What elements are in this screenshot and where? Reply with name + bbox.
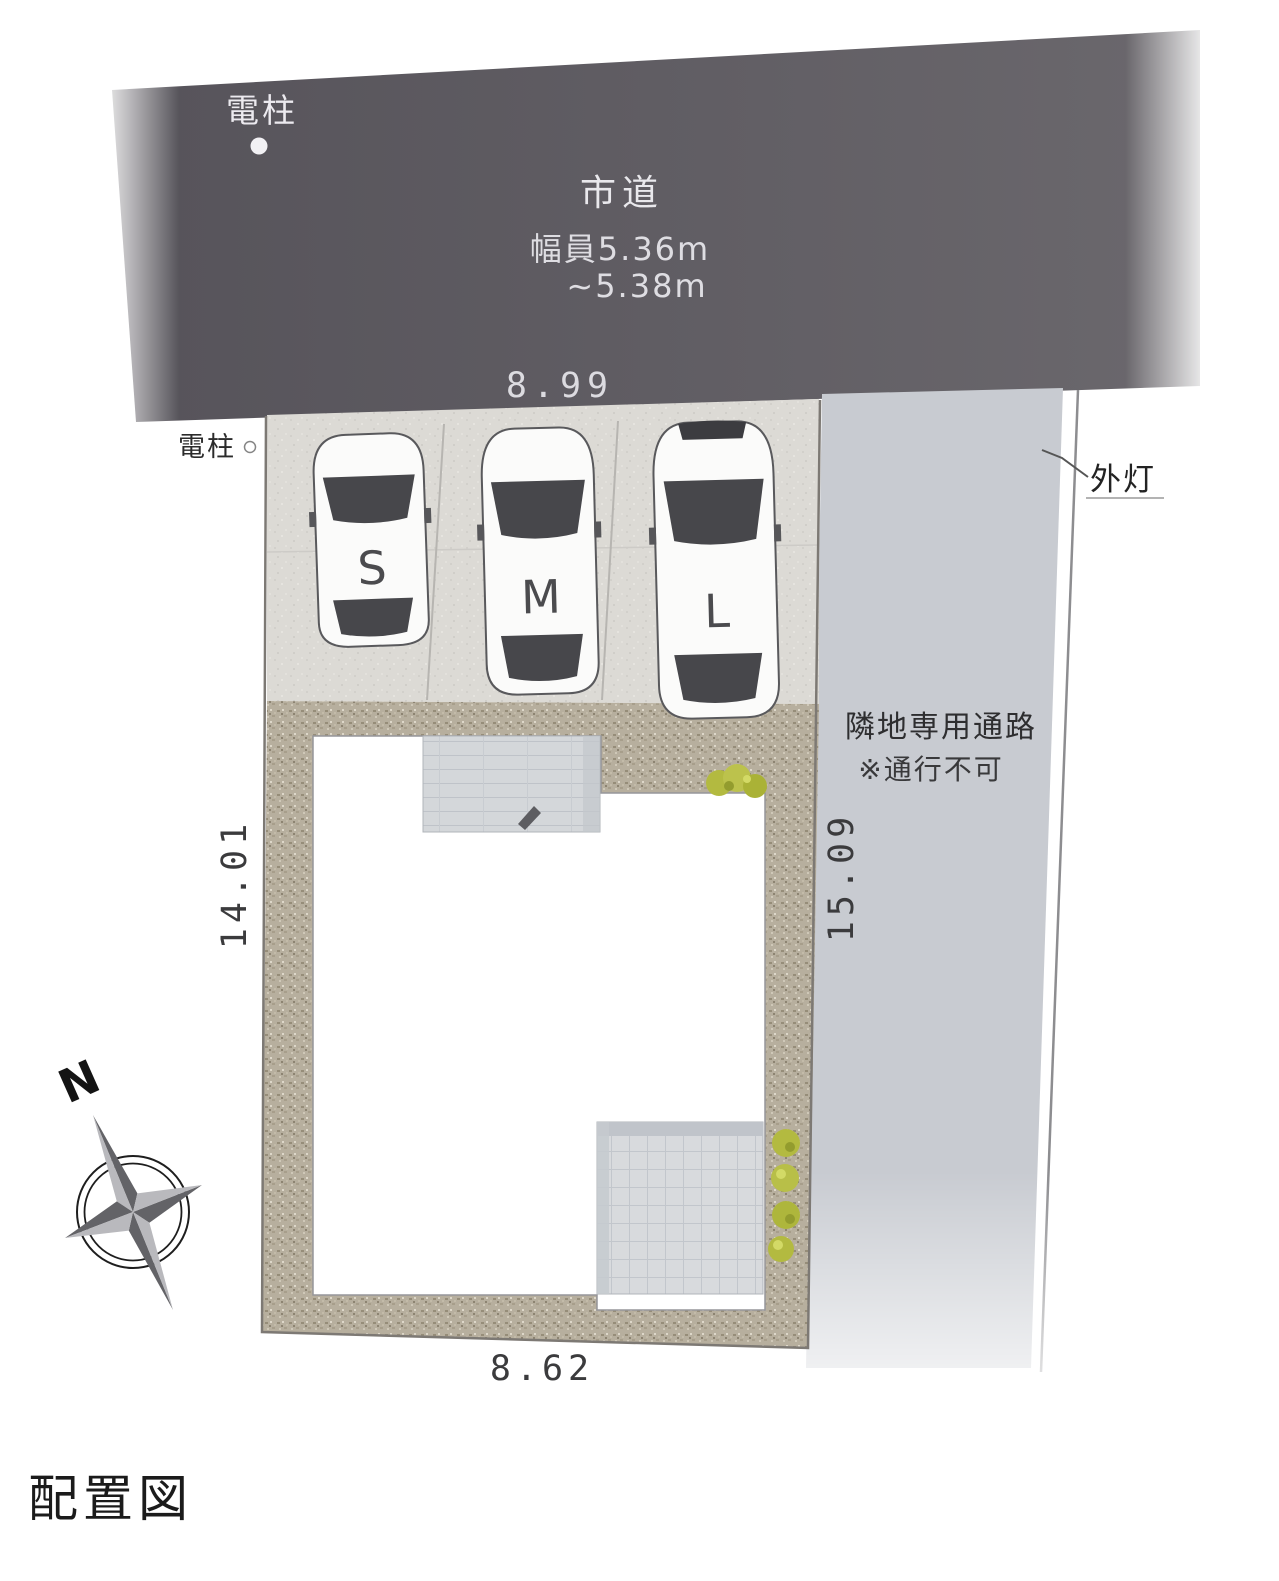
compass-north-label: N xyxy=(51,1049,108,1114)
terrace-left-shade xyxy=(597,1122,609,1294)
stall-letter-l: L xyxy=(704,584,731,639)
terrace-tiles xyxy=(597,1122,763,1294)
road-name-label: 市道 xyxy=(580,173,664,214)
car-l: L xyxy=(646,419,786,720)
porch-edge-shade xyxy=(583,736,600,832)
city-road-band: 電柱 市道 幅員5.36m ~5.38m 8.99 xyxy=(112,30,1200,422)
utility-pole-dot-icon xyxy=(251,138,268,155)
car-s: S xyxy=(306,432,435,648)
passage-label: 隣地専用通路 xyxy=(845,710,1037,745)
left-dimension-label: 14.01 xyxy=(215,819,255,949)
passage-note: ※通行不可 xyxy=(858,753,1003,786)
bottom-dimension-label: 8.62 xyxy=(490,1349,594,1389)
outdoor-light-callout: 外灯 xyxy=(1042,450,1164,498)
road-width-note-line2: ~5.38m xyxy=(566,267,707,305)
road-surface xyxy=(112,30,1200,422)
road-frontage-dimension: 8.99 xyxy=(506,366,614,406)
utility-pole-marker-icon xyxy=(245,442,256,453)
road-utility-pole-label: 電柱 xyxy=(226,91,298,130)
site-plan-svg: 電柱 市道 幅員5.36m ~5.38m 8.99 電柱 隣地専用通路 ※通行不… xyxy=(0,0,1279,1581)
stall-letter-s: S xyxy=(356,540,387,595)
page-title: 配置図 xyxy=(28,1470,193,1528)
outdoor-light-label: 外灯 xyxy=(1090,462,1156,498)
site-plan-page: 電柱 市道 幅員5.36m ~5.38m 8.99 電柱 隣地専用通路 ※通行不… xyxy=(0,0,1279,1581)
road-width-note-line1: 幅員5.36m xyxy=(530,230,710,268)
car-m: M xyxy=(475,426,606,695)
right-dimension-label: 15.09 xyxy=(822,812,862,942)
site-utility-pole-label: 電柱 xyxy=(178,432,236,463)
entrance-porch-tiles xyxy=(423,736,600,832)
compass-rose-icon: N xyxy=(51,1049,202,1310)
terrace-top-shade xyxy=(597,1122,763,1136)
site-utility-pole: 電柱 xyxy=(178,432,256,463)
stall-letter-m: M xyxy=(520,569,561,624)
